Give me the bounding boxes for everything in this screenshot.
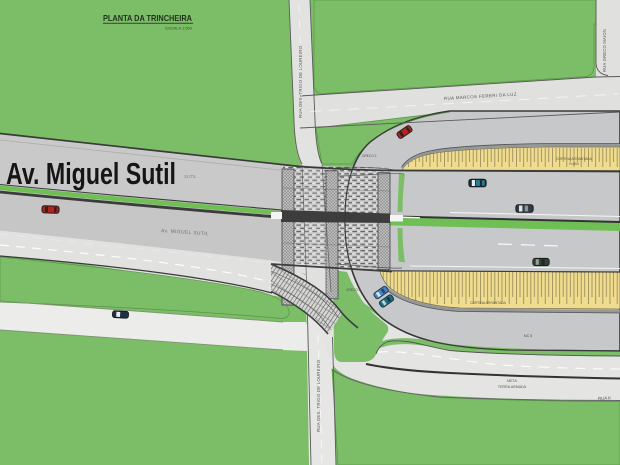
svg-text:RUA GRECO MAION: RUA GRECO MAION: [602, 29, 607, 72]
svg-text:RUA DES. TRIGO DE LOUREIRO: RUA DES. TRIGO DE LOUREIRO: [316, 359, 321, 432]
svg-text:Av. Miguel Sutil: Av. Miguel Sutil: [6, 156, 176, 191]
svg-text:SUTIL: SUTIL: [184, 174, 197, 179]
svg-text:GRECO 2: GRECO 2: [362, 154, 377, 158]
svg-text:GRECO 2: GRECO 2: [346, 288, 361, 292]
svg-text:CORTINA ATIRANTADA: CORTINA ATIRANTADA: [556, 157, 593, 161]
svg-text:ESCALA 1:500: ESCALA 1:500: [165, 26, 192, 31]
svg-text:CORTINA ATIRANTADA: CORTINA ATIRANTADA: [470, 301, 507, 305]
svg-text:MC 5: MC 5: [524, 334, 533, 338]
svg-text:RUA K: RUA K: [598, 395, 611, 401]
svg-text:TERRA ARMADA: TERRA ARMADA: [498, 385, 527, 389]
svg-text:H=800: H=800: [569, 162, 579, 166]
svg-text:PLANTA DA TRINCHEIRA: PLANTA DA TRINCHEIRA: [103, 14, 192, 23]
svg-text:META: META: [507, 379, 517, 383]
svg-text:RUA DES. TRIGO DE LOUREIRO: RUA DES. TRIGO DE LOUREIRO: [298, 45, 303, 118]
